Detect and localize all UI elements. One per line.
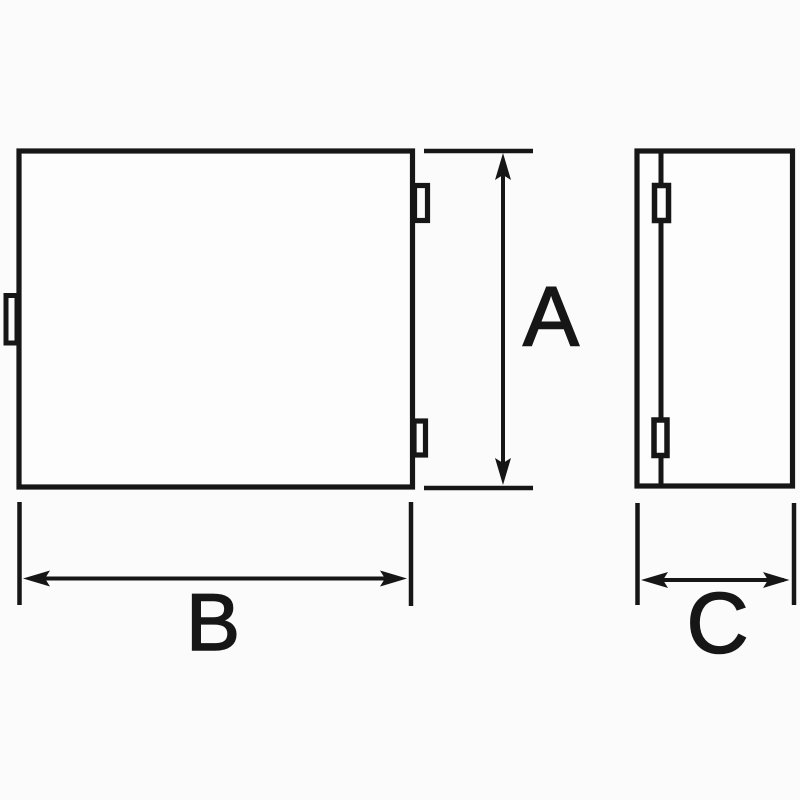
svg-text:C: C: [686, 576, 748, 672]
svg-text:B: B: [186, 578, 240, 668]
svg-text:A: A: [523, 270, 579, 364]
